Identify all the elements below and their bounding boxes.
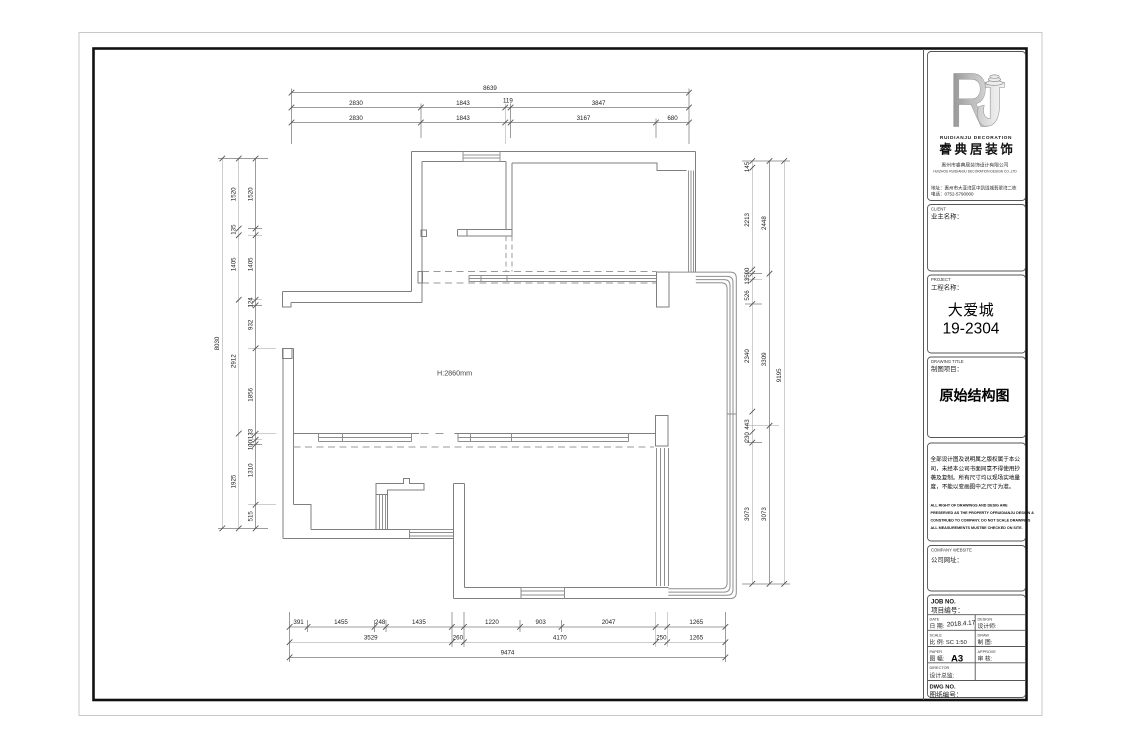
svg-text:119: 119 — [503, 98, 513, 105]
svg-text:2213: 2213 — [744, 212, 751, 226]
svg-text:145: 145 — [744, 161, 751, 172]
svg-text:COMPANY WEBSITE: COMPANY WEBSITE — [931, 548, 972, 553]
svg-text:1310: 1310 — [247, 463, 254, 477]
svg-text:3309: 3309 — [761, 352, 768, 366]
svg-text:SCALE: SCALE — [930, 634, 943, 638]
svg-text:1265: 1265 — [689, 619, 703, 626]
svg-text:90: 90 — [744, 267, 751, 274]
svg-text:2912: 2912 — [231, 354, 238, 368]
svg-text:8030: 8030 — [214, 336, 221, 350]
svg-text:250: 250 — [656, 635, 667, 642]
svg-text:图 幅:: 图 幅: — [930, 655, 945, 663]
svg-text:APPROVE: APPROVE — [978, 650, 997, 654]
svg-text:ALL RIGHT OF DRAWINGS AND DESI: ALL RIGHT OF DRAWINGS AND DESIG ARE — [931, 504, 1009, 508]
svg-text:图纸编号：: 图纸编号： — [930, 690, 963, 699]
svg-text:日 期:: 日 期: — [930, 623, 945, 630]
svg-text:度，不能以变画图中之尺寸为准。: 度，不能以变画图中之尺寸为准。 — [931, 483, 1015, 491]
svg-text:工程名称：: 工程名称： — [931, 283, 963, 292]
svg-text:DATE: DATE — [930, 618, 940, 622]
svg-text:制图项目：: 制图项目： — [931, 364, 963, 373]
svg-text:1220: 1220 — [485, 619, 499, 626]
svg-text:3529: 3529 — [364, 635, 378, 642]
svg-text:电话：0752-5790000: 电话：0752-5790000 — [931, 191, 974, 198]
svg-text:3847: 3847 — [592, 100, 606, 107]
svg-text:1405: 1405 — [231, 257, 238, 271]
svg-text:睿典居装饰: 睿典居装饰 — [939, 142, 1016, 157]
svg-text:1925: 1925 — [231, 474, 238, 488]
svg-text:680: 680 — [667, 115, 678, 122]
svg-text:903: 903 — [536, 619, 547, 626]
svg-text:9474: 9474 — [501, 650, 515, 657]
svg-text:1265: 1265 — [689, 635, 703, 642]
svg-text:3073: 3073 — [744, 507, 751, 521]
svg-text:比 例: SC 1:50: 比 例: SC 1:50 — [930, 638, 967, 646]
svg-text:2047: 2047 — [602, 619, 616, 626]
svg-text:2448: 2448 — [761, 216, 768, 230]
svg-text:1843: 1843 — [456, 100, 470, 107]
svg-text:DWG NO.: DWG NO. — [930, 685, 956, 691]
svg-text:230: 230 — [744, 432, 751, 443]
svg-text:RUIDIANJU DECORATION: RUIDIANJU DECORATION — [940, 135, 1012, 141]
svg-text:DRAWING TITLE: DRAWING TITLE — [931, 359, 964, 364]
svg-text:526: 526 — [744, 290, 751, 301]
svg-text:ALL MEASUREMENTS MUSTBE CHECKE: ALL MEASUREMENTS MUSTBE CHECKED ON SITE. — [931, 526, 1023, 530]
svg-text:2830: 2830 — [349, 100, 363, 107]
svg-text:全部设计图及说明属之版权属于本公: 全部设计图及说明属之版权属于本公 — [931, 455, 1021, 463]
svg-text:PRESERVED AS THE PROPERTY OFRU: PRESERVED AS THE PROPERTY OFRUIDIANJU DE… — [931, 511, 1035, 515]
svg-text:1435: 1435 — [412, 619, 426, 626]
svg-text:1856: 1856 — [247, 387, 254, 401]
svg-text:19-2304: 19-2304 — [943, 321, 1000, 338]
svg-text:审 核:: 审 核: — [978, 655, 993, 663]
svg-text:124: 124 — [247, 297, 254, 308]
svg-text:JOB NO.: JOB NO. — [931, 600, 956, 606]
svg-text:袭及复制。所有尺寸均以现场实地量: 袭及复制。所有尺寸均以现场实地量 — [931, 474, 1021, 482]
svg-text:2830: 2830 — [349, 115, 363, 122]
svg-text:1520: 1520 — [231, 187, 238, 201]
svg-text:设计师:: 设计师: — [978, 622, 997, 630]
svg-text:HUIZHOU RUIDIANJU DECORATION D: HUIZHOU RUIDIANJU DECORATION DESIGN CO.,… — [933, 170, 1017, 174]
svg-text:设计总监:: 设计总监: — [930, 672, 955, 680]
svg-text:100: 100 — [247, 439, 254, 450]
svg-text:4170: 4170 — [553, 635, 567, 642]
svg-text:原始结构图: 原始结构图 — [940, 388, 1010, 404]
svg-text:R: R — [949, 58, 990, 144]
svg-text:PAPER: PAPER — [930, 650, 943, 654]
svg-text:CLIENT: CLIENT — [931, 207, 946, 212]
svg-text:CONSTRUED TO COMPANY. DO NOT S: CONSTRUED TO COMPANY. DO NOT SCALE DRAWI… — [931, 519, 1031, 523]
svg-text:1455: 1455 — [334, 619, 348, 626]
svg-text:业主名称：: 业主名称： — [931, 212, 963, 221]
svg-text:A3: A3 — [951, 654, 963, 665]
svg-text:惠州市睿典居装饰设计有限公司: 惠州市睿典居装饰设计有限公司 — [941, 162, 1008, 169]
svg-text:DRAW: DRAW — [978, 634, 990, 638]
svg-text:443: 443 — [744, 419, 751, 430]
svg-text:司，未经本公司书面同意不得使用抄: 司，未经本公司书面同意不得使用抄 — [931, 464, 1021, 472]
svg-text:公司网址：: 公司网址： — [931, 555, 963, 564]
svg-text:135: 135 — [231, 224, 238, 235]
svg-text:248: 248 — [375, 619, 386, 626]
svg-text:260: 260 — [453, 635, 464, 642]
svg-text:515: 515 — [247, 511, 254, 522]
svg-text:DESIGN: DESIGN — [978, 618, 993, 622]
svg-text:制 图:: 制 图: — [978, 638, 993, 646]
svg-text:9195: 9195 — [776, 368, 783, 382]
svg-text:3073: 3073 — [761, 507, 768, 521]
svg-text:1405: 1405 — [247, 257, 254, 271]
svg-text:项目编号：: 项目编号： — [931, 606, 964, 615]
svg-text:PROJECT: PROJECT — [931, 277, 951, 282]
svg-text:地址：惠州市大亚湾区中凯珑城翡翠湾二栋: 地址：惠州市大亚湾区中凯珑城翡翠湾二栋 — [931, 185, 1017, 192]
svg-text:3167: 3167 — [577, 115, 591, 122]
svg-text:135: 135 — [744, 274, 751, 285]
svg-text:1520: 1520 — [247, 187, 254, 201]
svg-text:大爱城: 大爱城 — [948, 302, 995, 319]
svg-text:8639: 8639 — [483, 85, 497, 92]
svg-text:932: 932 — [247, 319, 254, 330]
svg-text:1843: 1843 — [456, 115, 470, 122]
svg-text:DIRECTOR: DIRECTOR — [930, 666, 950, 670]
svg-text:133: 133 — [247, 428, 254, 439]
svg-text:2340: 2340 — [744, 349, 751, 363]
svg-text:391: 391 — [293, 619, 304, 626]
svg-text:H:2860mm: H:2860mm — [437, 369, 472, 378]
